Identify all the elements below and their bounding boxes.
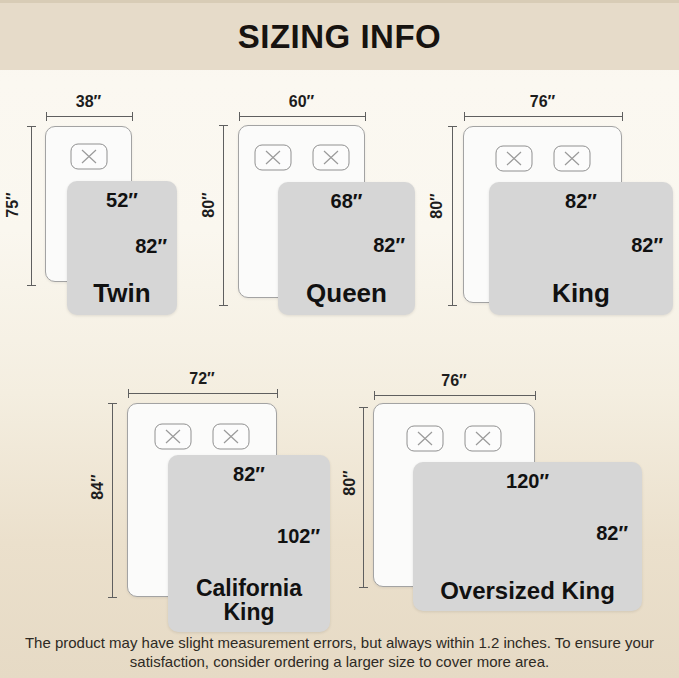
bed-width-label: 72″ [127,370,277,388]
pillow-icon [553,145,591,172]
bed-length-label: 75″ [5,185,21,225]
bed-length-label: 80″ [342,463,358,503]
bed-length-label: 80″ [429,186,445,226]
length-dimension-line [448,126,457,306]
width-dimension-line [464,112,623,121]
bed-length-label: 80″ [201,185,217,225]
size-name-label: Oversized King [413,578,642,603]
blanket: 52″ 82″ Twin [67,181,177,315]
bed-width-label: 38″ [45,93,132,111]
size-name-label: King [489,280,673,307]
bed-width-label: 60″ [238,93,365,111]
disclaimer-note: The product may have slight measurement … [0,633,679,671]
blanket-width-label: 82″ [489,190,673,213]
pillow-icon [406,425,444,452]
length-dimension-line [108,403,117,598]
sizing-info-page: SIZING INFO 38″ 75″ 52″ 82″ Twin 60″ 80″ [0,0,679,678]
pillow-icon [154,423,192,450]
page-title: SIZING INFO [238,18,442,56]
size-name-label: California King [168,576,330,624]
bed-width-label: 76″ [373,372,535,390]
bed-width-label: 76″ [463,93,622,111]
width-dimension-line [239,112,366,121]
width-dimension-line [46,112,133,121]
disclaimer-line-1: The product may have slight measurement … [0,633,679,652]
pillow-icon [254,144,292,171]
blanket-width-label: 68″ [278,190,415,213]
blanket-length-label: 82″ [596,522,628,545]
disclaimer-line-2: satisfaction, consider ordering a larger… [0,652,679,671]
title-banner: SIZING INFO [0,0,679,70]
blanket: 82″ 82″ King [489,182,673,315]
blanket: 120″ 82″ Oversized King [413,462,642,611]
pillow-icon [464,425,502,452]
blanket: 68″ 82″ Queen [278,182,415,315]
length-dimension-line [219,125,228,306]
blanket: 82″ 102″ California King [168,455,330,632]
blanket-width-label: 120″ [413,470,642,493]
pillow-icon [70,143,108,170]
length-dimension-line [27,126,36,286]
blanket-length-label: 82″ [631,234,663,257]
blanket-width-label: 52″ [67,189,177,212]
blanket-width-label: 82″ [168,463,330,486]
width-dimension-line [128,389,278,398]
blanket-length-label: 102″ [277,525,320,548]
size-name-label: Twin [67,280,177,307]
pillow-icon [212,423,250,450]
length-dimension-line [359,407,368,588]
pillow-icon [312,144,350,171]
width-dimension-line [374,391,536,400]
bed-length-label: 84″ [90,467,106,507]
blanket-length-label: 82″ [373,234,405,257]
pillow-icon [495,145,533,172]
blanket-length-label: 82″ [135,235,167,258]
size-name-label: Queen [278,280,415,307]
